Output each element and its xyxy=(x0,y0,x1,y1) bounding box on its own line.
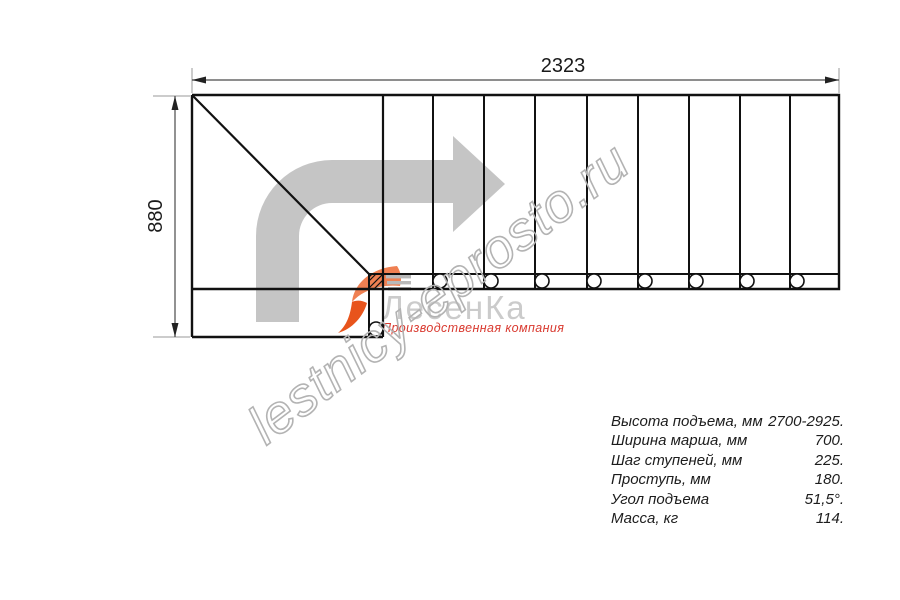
spec-table: Высота подъема, мм 2700-2925. Ширина мар… xyxy=(611,412,844,528)
spec-row: Ширина марша, мм 700. xyxy=(611,431,844,450)
spec-row: Масса, кг 114. xyxy=(611,509,844,528)
spec-row: Проступь, мм 180. xyxy=(611,470,844,489)
spec-value: 700. xyxy=(815,431,844,450)
spec-label: Ширина марша, мм xyxy=(611,431,747,450)
spec-value: 180. xyxy=(815,470,844,489)
spec-label: Проступь, мм xyxy=(611,470,711,489)
dimension-width-label: 2323 xyxy=(541,55,586,77)
spec-row: Шаг ступеней, мм 225. xyxy=(611,451,844,470)
spec-value: 2700-2925. xyxy=(768,412,844,431)
spec-label: Масса, кг xyxy=(611,509,678,528)
dimension-height-label: 880 xyxy=(145,199,167,232)
spec-label: Высота подъема, мм xyxy=(611,412,763,431)
spec-value: 51,5°. xyxy=(805,490,844,509)
spec-row: Высота подъема, мм 2700-2925. xyxy=(611,412,844,431)
spec-value: 225. xyxy=(815,451,844,470)
stair-plan-page: ЛесенКа Производственная компания xyxy=(0,0,900,600)
spec-label: Шаг ступеней, мм xyxy=(611,451,742,470)
spec-label: Угол подъема xyxy=(611,490,709,509)
spec-row: Угол подъема 51,5°. xyxy=(611,490,844,509)
spec-value: 114. xyxy=(816,509,844,528)
